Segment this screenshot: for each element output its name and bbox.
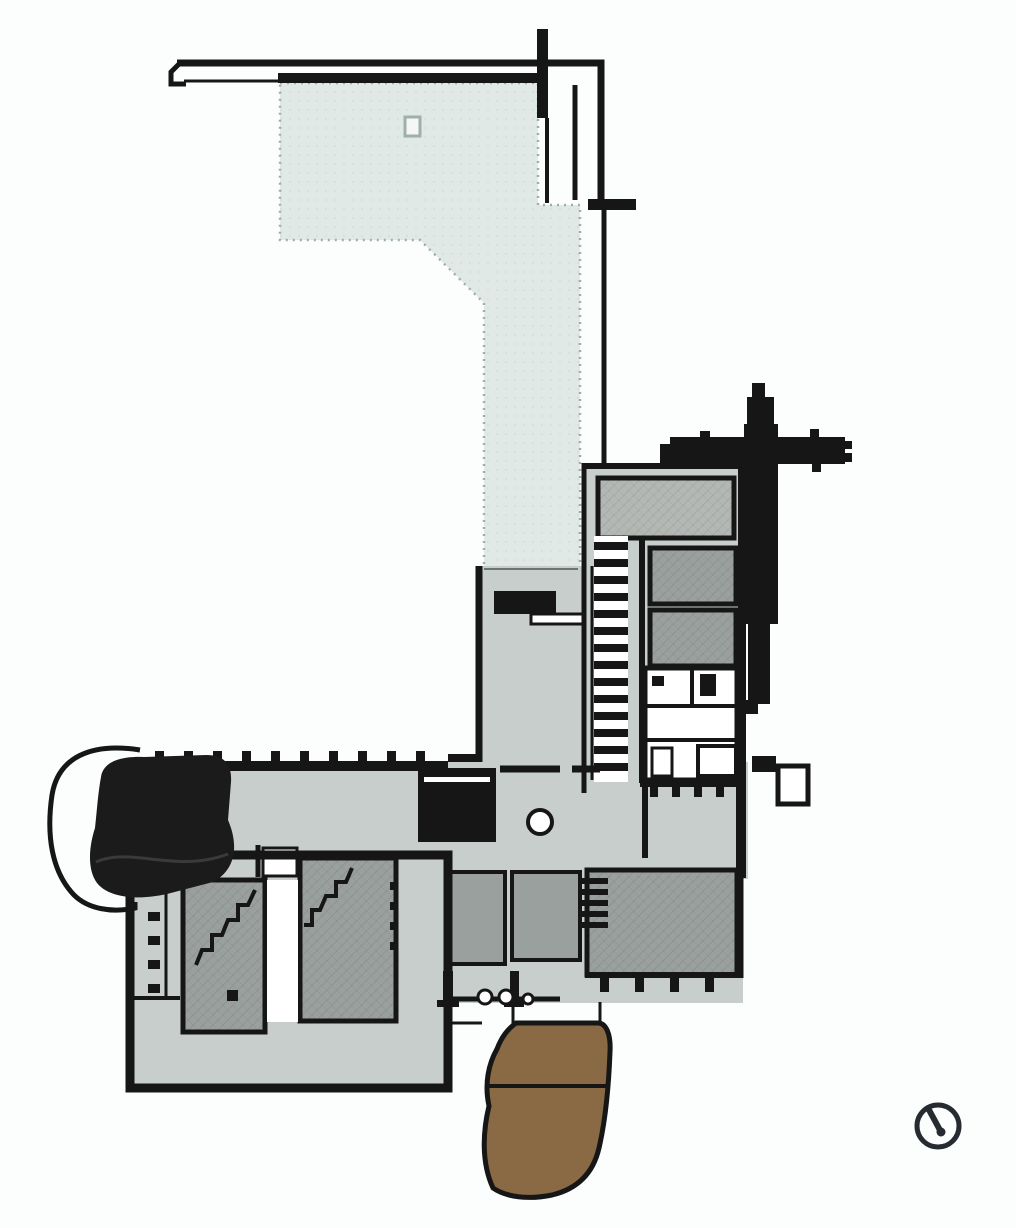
ramp-shape (484, 1023, 610, 1197)
stair-tread-small (578, 900, 608, 906)
block-dash (148, 936, 160, 945)
cross-arm-tooth-b (843, 453, 852, 462)
foundation-tick (670, 978, 679, 992)
foundation-tick (600, 978, 609, 992)
cross-arm-step (660, 444, 674, 463)
hatch-overlay (183, 880, 265, 1032)
cross-column-stem (748, 624, 770, 704)
stair-tread (594, 542, 628, 550)
wing-east-wall (736, 762, 746, 878)
cross-arm-tick-top (700, 431, 710, 439)
room-column (227, 990, 238, 1001)
reception-desk (494, 591, 556, 614)
terraced-ramp (484, 1023, 610, 1197)
stair-tread (594, 559, 628, 567)
cross-column-lower (744, 544, 778, 624)
fixture-mark (652, 676, 664, 686)
stair-tread (594, 593, 628, 601)
stair-tread (594, 746, 628, 754)
hatch-overlay (587, 870, 737, 975)
stair-run-east-strip (594, 536, 628, 782)
cross-arm-tick-a (810, 429, 819, 437)
door-swing (523, 994, 533, 1004)
stair-tread (594, 763, 628, 771)
foundation-tick (650, 787, 658, 797)
stair-tread (594, 678, 628, 686)
column-tick (300, 751, 309, 763)
column-tick (271, 751, 280, 763)
room-tooth (390, 882, 398, 890)
floor-plan-canvas (0, 0, 1016, 1228)
north-arrow-pivot (937, 1128, 946, 1137)
column-tick (329, 751, 338, 763)
stair-tread (594, 644, 628, 652)
plaza-top-wall (278, 73, 540, 83)
cross-arm-tick-b (812, 464, 821, 472)
column-tick (358, 751, 367, 763)
stair-tread-small (578, 878, 608, 884)
foundation-tick (694, 787, 702, 797)
block-dash (148, 960, 160, 969)
stair-tread (594, 695, 628, 703)
fixture-mark (700, 674, 716, 696)
block-dash (148, 984, 160, 993)
stair-core-mark (436, 818, 454, 826)
hatch-overlay (598, 478, 734, 538)
stair-tread (594, 729, 628, 737)
door-swing (499, 990, 513, 1004)
foundation-tick (635, 978, 644, 992)
column-tick (242, 751, 251, 763)
hatch-overlay (650, 548, 736, 604)
south-room-a (447, 872, 505, 964)
stair-core-mark (462, 792, 474, 828)
cross-cap (747, 397, 774, 426)
cross-column-foot (745, 700, 758, 714)
hatch-overlay (650, 610, 736, 666)
survey-tick-horizontal (588, 199, 636, 210)
cross-arm-tooth-a (843, 441, 852, 449)
foundation-tick (672, 787, 680, 797)
hatch-overlay (300, 858, 396, 1021)
door-swing (478, 990, 492, 1004)
porch-foot (437, 1000, 459, 1007)
column-tick (387, 751, 396, 763)
room-tooth (390, 902, 398, 910)
desk-tray (531, 614, 583, 624)
southwest-corridor (267, 880, 298, 1022)
exterior-stoop (778, 766, 808, 804)
service-closet-b (652, 748, 672, 776)
column-tick (416, 751, 425, 763)
room-tooth (390, 922, 398, 930)
stair-tread-small (578, 911, 608, 917)
auditorium-hall (90, 755, 234, 897)
stair-tread (594, 576, 628, 584)
service-bottom-wall (640, 778, 740, 787)
cross-arm (670, 437, 845, 464)
free-column (528, 810, 552, 834)
stair-core-slit (424, 777, 490, 782)
foundation-tick (716, 787, 724, 797)
cross-finial (752, 383, 765, 398)
north-arrow (917, 1105, 959, 1147)
stair-tread (594, 610, 628, 618)
room-tooth (390, 942, 398, 950)
service-closet-a (698, 746, 736, 776)
stair-tread (594, 627, 628, 635)
stair-tread (594, 661, 628, 669)
wing-east-pier (752, 756, 776, 772)
porch-post (443, 971, 453, 1003)
south-room-b (512, 872, 580, 960)
stair-tread-small (578, 922, 608, 928)
block-dash (148, 912, 160, 921)
foundation-tick (705, 978, 714, 992)
floor-plan-drawing (0, 0, 1016, 1228)
stair-tread (594, 712, 628, 720)
stair-tread-small (578, 889, 608, 895)
plaza-rooflight (405, 117, 420, 136)
